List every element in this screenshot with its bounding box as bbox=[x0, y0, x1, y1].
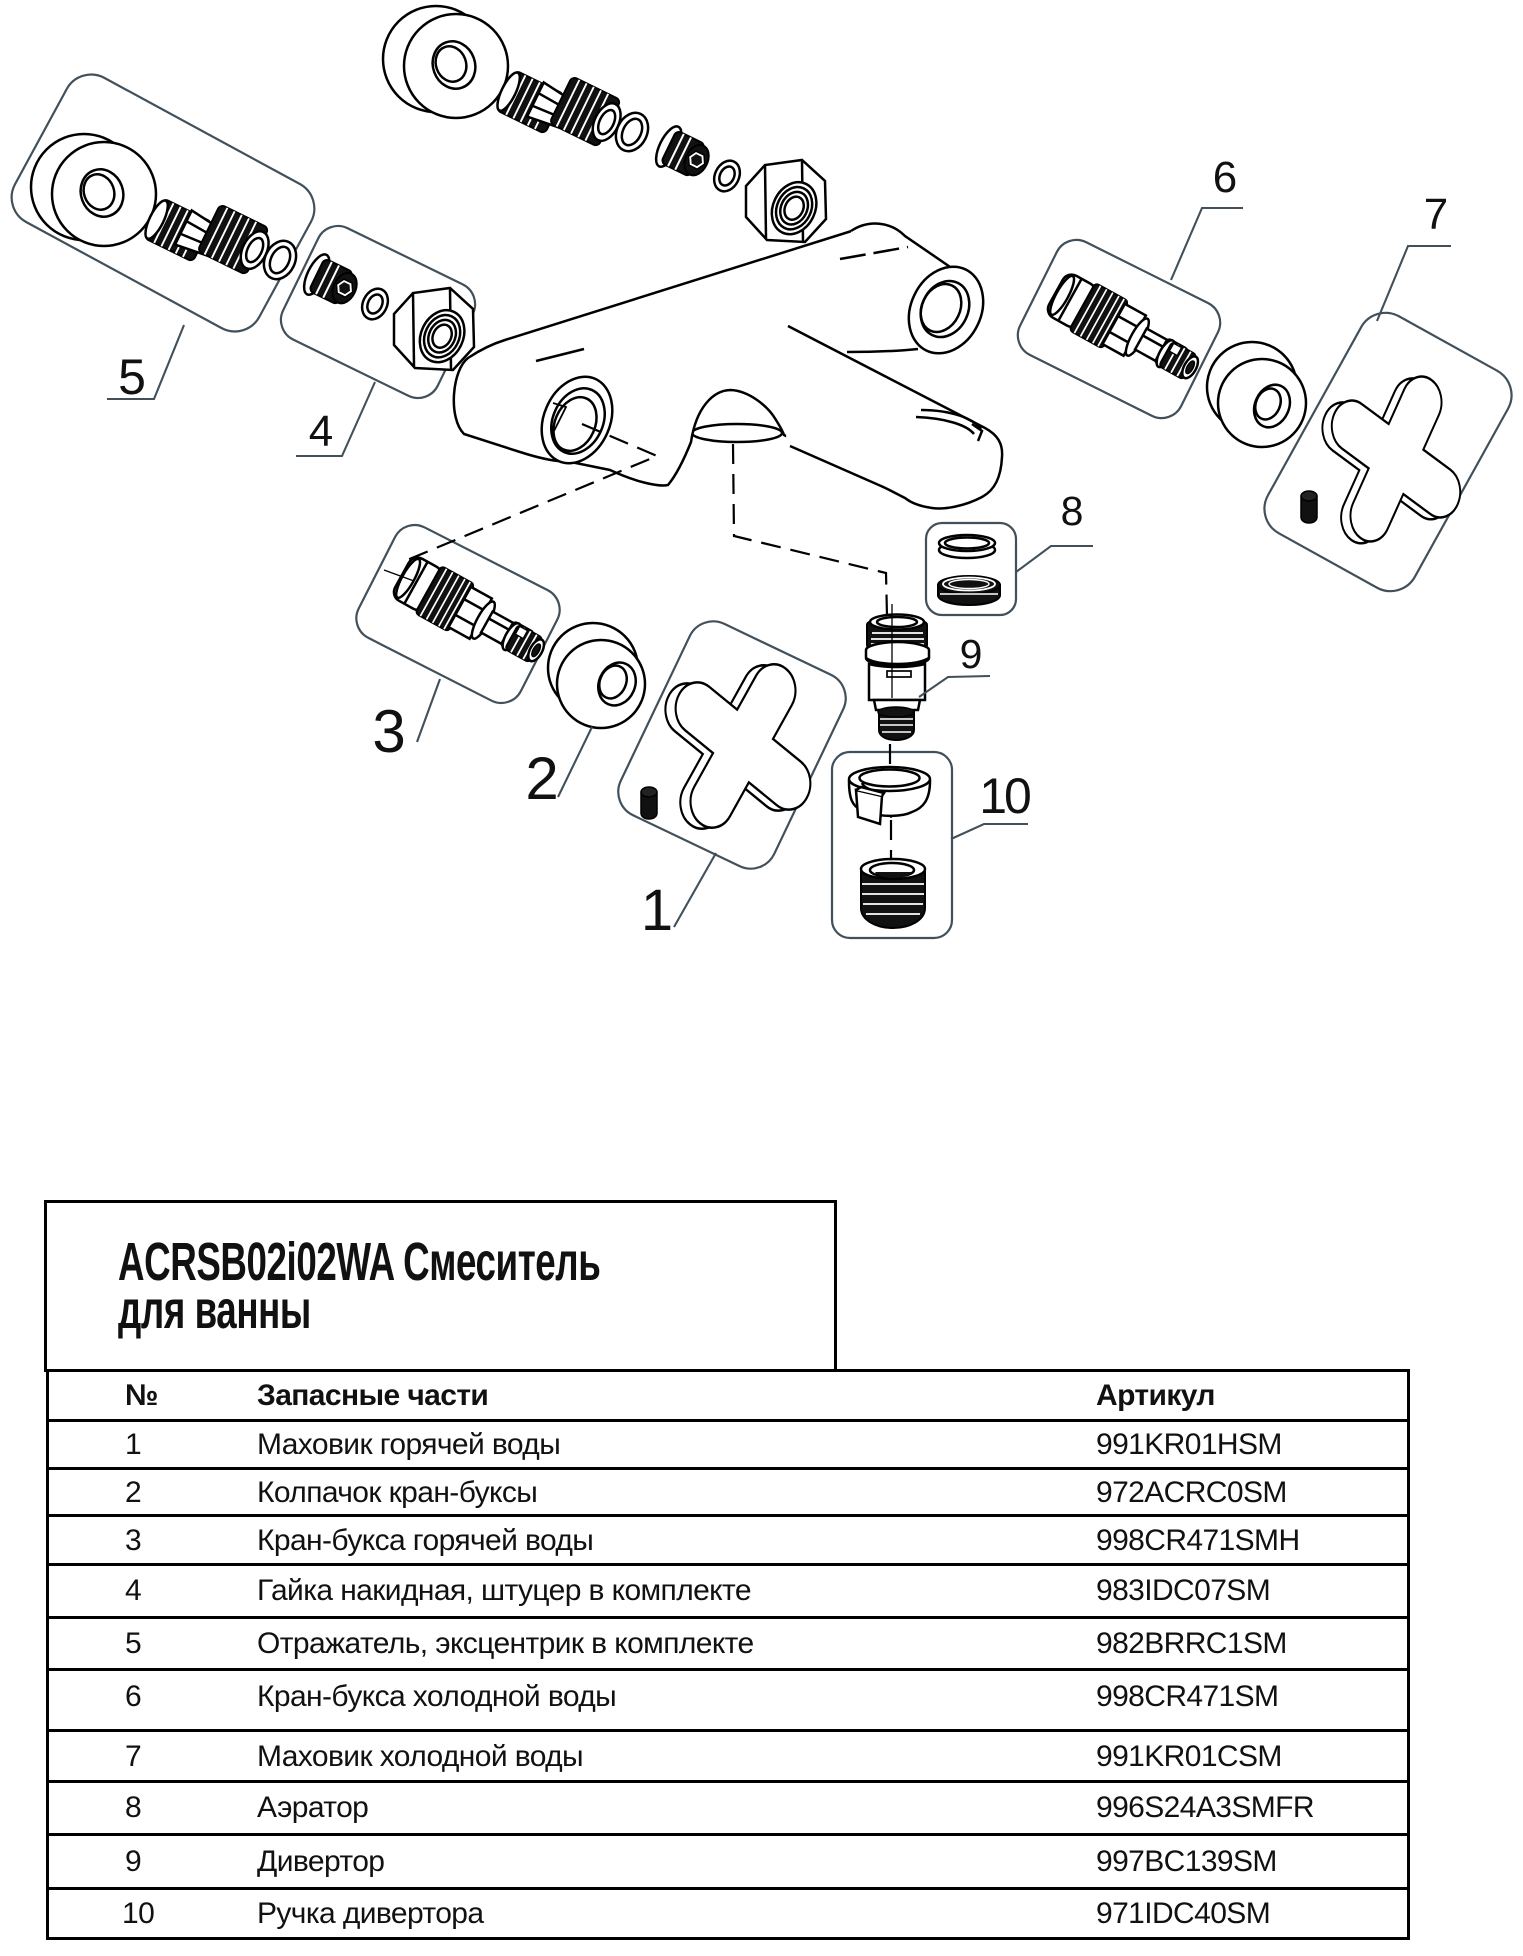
svg-text:10: 10 bbox=[979, 768, 1030, 824]
svg-text:7: 7 bbox=[1424, 190, 1448, 239]
svg-text:9: 9 bbox=[960, 631, 983, 677]
svg-text:2: 2 bbox=[525, 745, 558, 812]
svg-text:3: 3 bbox=[372, 698, 405, 765]
svg-text:1: 1 bbox=[641, 878, 673, 943]
svg-text:4: 4 bbox=[309, 407, 333, 456]
svg-text:5: 5 bbox=[118, 349, 146, 405]
svg-text:6: 6 bbox=[1213, 153, 1237, 202]
svg-text:8: 8 bbox=[1061, 488, 1084, 534]
